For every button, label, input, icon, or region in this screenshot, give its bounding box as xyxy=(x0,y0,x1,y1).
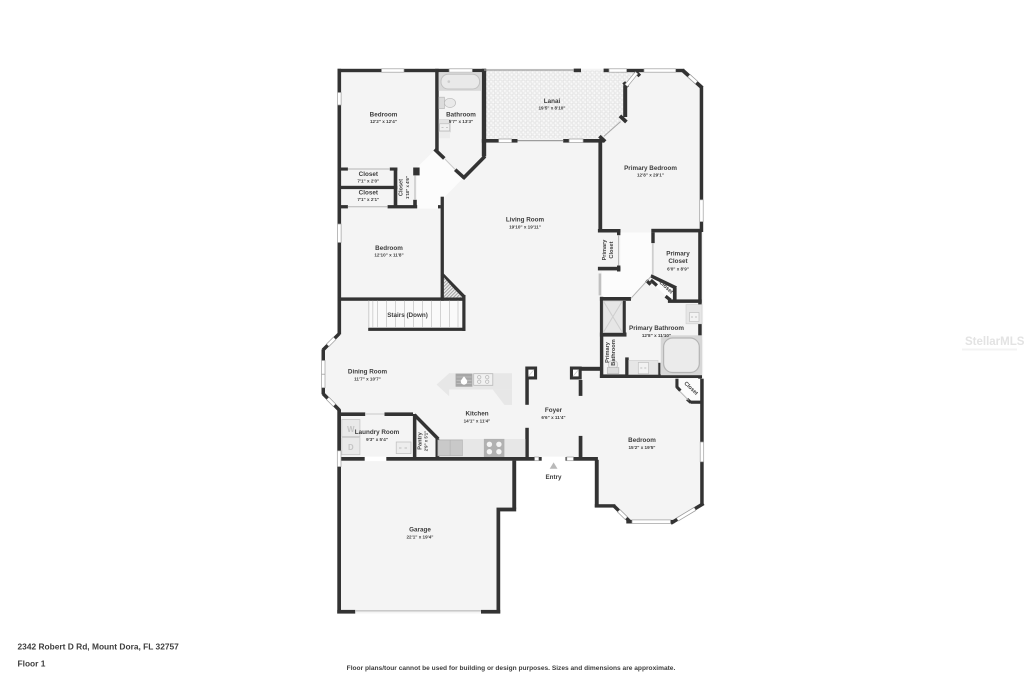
svg-text:Floor 1: Floor 1 xyxy=(18,659,46,669)
svg-text:Floor plans/tour cannot be use: Floor plans/tour cannot be used for buil… xyxy=(347,665,676,672)
svg-text:Primary Bathroom: Primary Bathroom xyxy=(629,325,684,332)
svg-text:D: D xyxy=(348,443,354,452)
svg-text:Closet: Closet xyxy=(668,258,688,265)
svg-text:Primary: Primary xyxy=(666,250,690,257)
svg-text:15'2" x 19'5": 15'2" x 19'5" xyxy=(629,445,656,450)
svg-text:Closet: Closet xyxy=(359,171,379,178)
svg-text:11'7" x 10'7": 11'7" x 10'7" xyxy=(354,376,381,381)
svg-text:Primary: Primary xyxy=(605,341,611,363)
svg-text:6'0" x 8'9": 6'0" x 8'9" xyxy=(667,266,689,271)
svg-text:Bedroom: Bedroom xyxy=(370,111,398,118)
svg-text:Bathroom: Bathroom xyxy=(611,339,617,365)
svg-text:12'8" x 29'1": 12'8" x 29'1" xyxy=(637,172,664,177)
svg-text:Lanai: Lanai xyxy=(544,98,561,105)
svg-text:Primary: Primary xyxy=(602,239,608,261)
svg-text:19'10" x 19'11": 19'10" x 19'11" xyxy=(509,224,541,229)
svg-text:12'8" x 11'10": 12'8" x 11'10" xyxy=(642,333,671,338)
svg-text:Foyer: Foyer xyxy=(545,407,563,414)
svg-text:5'7" x 13'3": 5'7" x 13'3" xyxy=(449,119,473,124)
svg-text:2342 Robert D Rd, Mount Dora,: 2342 Robert D Rd, Mount Dora, FL 32757 xyxy=(18,642,180,652)
svg-text:6'6" x 11'4": 6'6" x 11'4" xyxy=(541,415,565,420)
svg-text:12'2" x 12'4": 12'2" x 12'4" xyxy=(370,119,397,124)
svg-text:Bathroom: Bathroom xyxy=(446,111,476,118)
svg-text:7'1" x 2'1": 7'1" x 2'1" xyxy=(357,197,379,202)
svg-text:Closet: Closet xyxy=(609,241,615,258)
svg-text:19'5" x 8'10": 19'5" x 8'10" xyxy=(539,105,566,110)
svg-text:Closet: Closet xyxy=(359,190,379,197)
svg-text:7'1" x 2'0": 7'1" x 2'0" xyxy=(357,179,379,184)
svg-text:2'9" x 5'1": 2'9" x 5'1" xyxy=(424,431,429,451)
svg-text:Garage: Garage xyxy=(409,526,431,533)
svg-text:9'3" x 5'4": 9'3" x 5'4" xyxy=(366,437,388,442)
svg-text:Dining Room: Dining Room xyxy=(348,369,388,376)
svg-text:Bedroom: Bedroom xyxy=(375,245,403,252)
svg-text:StellarMLS: StellarMLS xyxy=(965,336,1024,348)
svg-text:Primary Bedroom: Primary Bedroom xyxy=(624,165,677,172)
svg-text:Living Room: Living Room xyxy=(506,216,545,223)
svg-text:Laundry Room: Laundry Room xyxy=(355,429,400,436)
svg-text:Stairs (Down): Stairs (Down) xyxy=(387,312,428,319)
svg-text:Entry: Entry xyxy=(545,474,562,481)
svg-text:1'10" x 4'6": 1'10" x 4'6" xyxy=(405,176,410,199)
svg-text:14'1" x 11'4": 14'1" x 11'4" xyxy=(464,419,491,424)
svg-text:Kitchen: Kitchen xyxy=(465,411,488,418)
svg-text:22'1" x 19'4": 22'1" x 19'4" xyxy=(407,535,434,540)
svg-text:12'10" x 11'8": 12'10" x 11'8" xyxy=(374,253,403,258)
svg-text:Closet: Closet xyxy=(399,179,405,196)
svg-text:Bedroom: Bedroom xyxy=(628,437,656,444)
